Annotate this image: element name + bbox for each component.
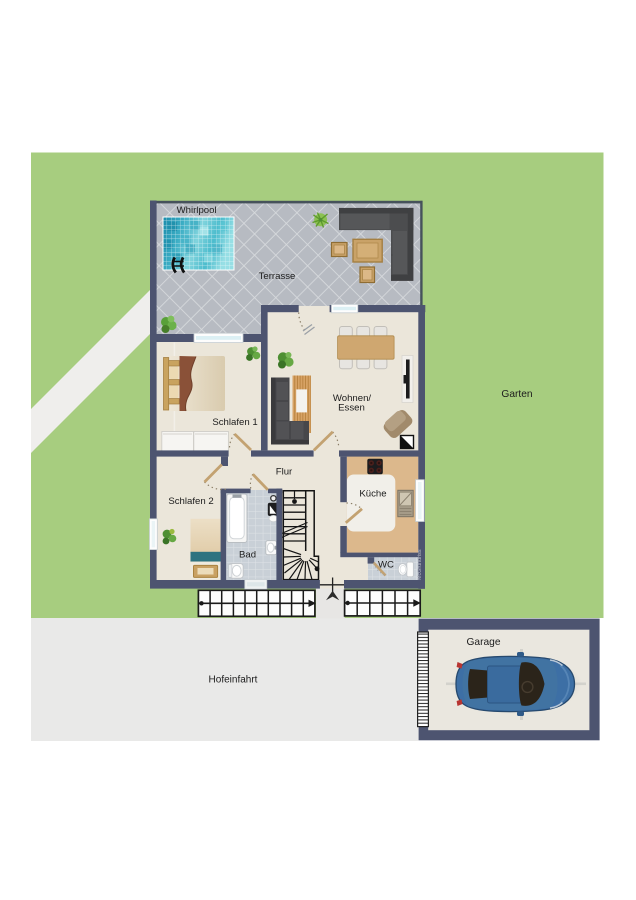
svg-text:McGrundriss: McGrundriss xyxy=(417,549,423,580)
svg-text:Garage: Garage xyxy=(467,637,501,648)
svg-text:Schlafen 2: Schlafen 2 xyxy=(168,496,213,507)
svg-text:Whirlpool: Whirlpool xyxy=(177,205,217,216)
svg-text:Küche: Küche xyxy=(359,488,386,499)
svg-text:Essen: Essen xyxy=(338,402,365,413)
svg-text:Flur: Flur xyxy=(276,467,293,478)
svg-text:Bad: Bad xyxy=(239,549,256,560)
svg-text:WC: WC xyxy=(378,560,394,571)
svg-text:Terrasse: Terrasse xyxy=(259,271,296,282)
svg-text:Schlafen 1: Schlafen 1 xyxy=(212,417,257,428)
svg-text:Garten: Garten xyxy=(501,389,532,400)
svg-text:Hofeinfahrt: Hofeinfahrt xyxy=(209,675,258,686)
